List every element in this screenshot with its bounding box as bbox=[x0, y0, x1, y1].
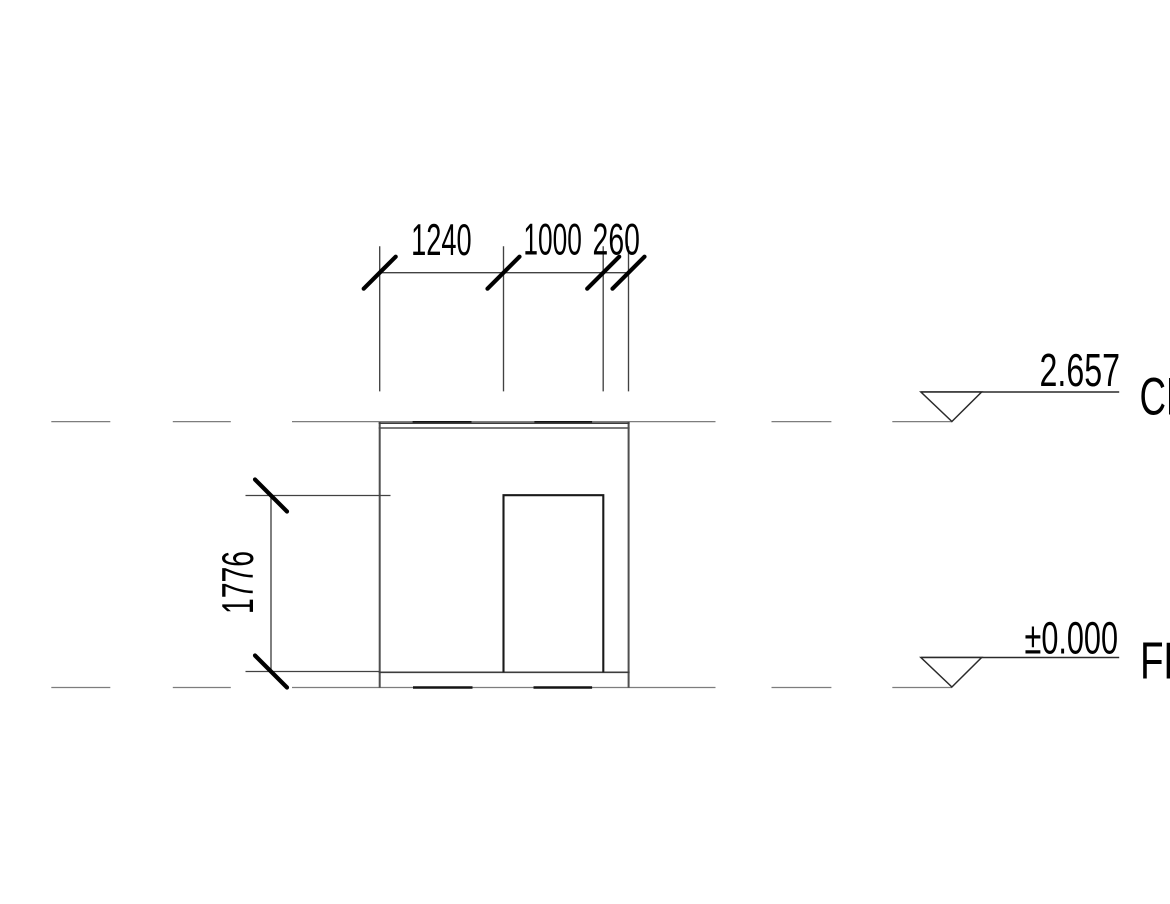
svg-text:FL: FL bbox=[1140, 632, 1170, 690]
svg-text:1240: 1240 bbox=[411, 216, 472, 265]
svg-text:260: 260 bbox=[593, 216, 640, 265]
svg-text:2.657: 2.657 bbox=[1040, 344, 1121, 396]
svg-text:1776: 1776 bbox=[214, 551, 263, 614]
svg-text:1000: 1000 bbox=[523, 216, 582, 265]
svg-text:CL: CL bbox=[1140, 367, 1170, 426]
svg-text:±0.000: ±0.000 bbox=[1025, 612, 1119, 663]
